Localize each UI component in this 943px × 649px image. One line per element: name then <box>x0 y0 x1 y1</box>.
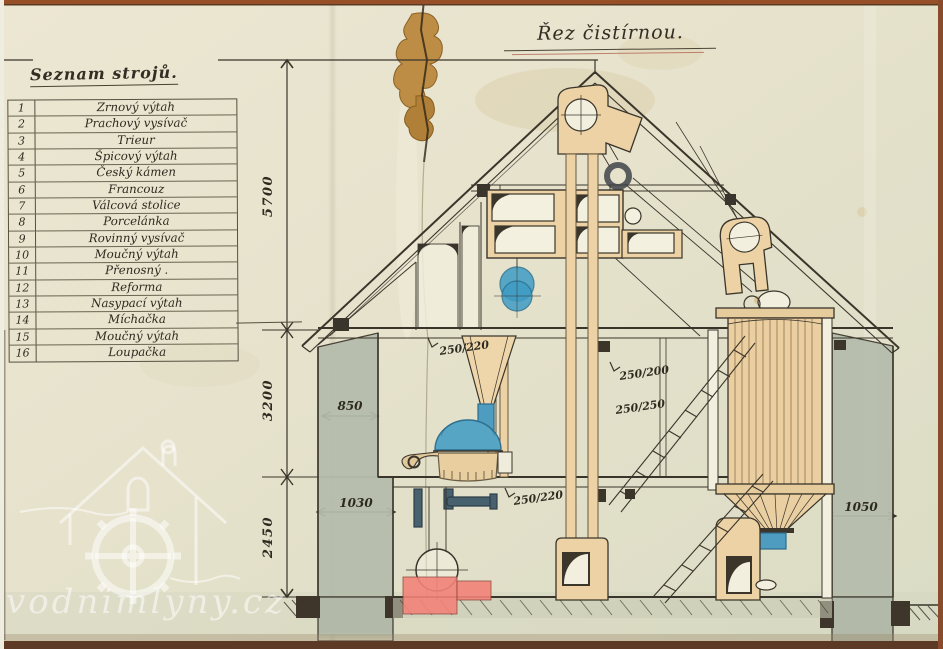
dim-1030: 1030 <box>339 496 373 510</box>
machine-number: 13 <box>9 297 36 312</box>
drawing-title: Řez čistírnou. <box>498 21 723 45</box>
machine-number: 14 <box>9 313 36 328</box>
drawing-title-text: Řez čistírnou. <box>537 21 684 45</box>
machine-number: 11 <box>9 264 36 279</box>
machine-name: Nasypací výtah <box>36 296 237 312</box>
scanned-blueprint-page: 5700 3200 2450 850 1030 1050 250/220 250… <box>0 0 943 649</box>
machine-name: Válcová stolice <box>36 197 237 213</box>
foundation-block-red-small <box>457 581 491 600</box>
machine-number: 15 <box>10 329 37 344</box>
machine-name: Rovinný vysívač <box>36 230 237 246</box>
machine-number: 5 <box>9 166 36 181</box>
dim-3200: 3200 <box>261 379 276 421</box>
machine-number: 16 <box>10 346 37 361</box>
machine-name: Francouz <box>36 181 237 197</box>
machine-row: 3Trieur <box>8 131 236 149</box>
machine-number: 4 <box>9 149 36 164</box>
dim-850: 850 <box>337 399 363 413</box>
machine-number: 2 <box>8 117 35 132</box>
dim-2450: 2450 <box>261 516 276 559</box>
machine-list-table: 1Zrnový výtah 2Prachový vysívač 3Trieur … <box>7 98 238 362</box>
machine-row: 14Míchačka <box>9 311 237 329</box>
foundation-block-red <box>403 577 457 614</box>
machine-row: 10Moučný výtah <box>9 245 237 263</box>
machine-number: 8 <box>9 215 36 230</box>
machine-number: 10 <box>9 248 36 263</box>
machine-row: 11Přenosný . <box>9 262 237 280</box>
machine-list-header: Seznam strojů. <box>30 63 178 88</box>
machine-row: 2Prachový vysívač <box>8 115 236 133</box>
dim-1050: 1050 <box>844 500 878 514</box>
machine-row: 12Reforma <box>9 278 237 296</box>
machine-name: Moučný výtah <box>37 328 238 344</box>
machine-row: 4Špicový výtah <box>9 147 237 165</box>
machine-name: Loupačka <box>37 345 238 361</box>
machine-name: Zrnový výtah <box>35 99 236 115</box>
machine-number: 3 <box>8 133 35 148</box>
machine-row: 15Moučný výtah <box>10 327 238 345</box>
machine-number: 7 <box>9 199 36 214</box>
machine-name: Reforma <box>36 279 237 295</box>
machine-name: Trieur <box>35 132 236 148</box>
machine-name: Prachový vysívač <box>35 116 236 132</box>
machine-row: 1Zrnový výtah <box>8 99 236 116</box>
machine-name: Porcelánka <box>36 214 237 230</box>
machine-row: 16Loupačka <box>10 344 238 362</box>
machine-name: Špicový výtah <box>36 148 237 164</box>
machine-name: Moučný výtah <box>36 246 237 262</box>
machine-row: 9Rovinný vysívač <box>9 229 237 247</box>
machine-row: 5Český kámen <box>9 164 237 182</box>
machine-row: 8Porcelánka <box>9 213 237 231</box>
machine-number: 12 <box>9 280 36 295</box>
machine-name: Přenosný . <box>36 263 237 279</box>
machine-number: 1 <box>8 100 35 115</box>
machine-row: 7Válcová stolice <box>9 196 237 214</box>
machine-number: 6 <box>9 182 36 197</box>
dim-5700: 5700 <box>261 175 276 217</box>
machine-row: 6Francouz <box>9 180 237 198</box>
machine-name: Míchačka <box>36 312 237 328</box>
machine-row: 13Nasypací výtah <box>9 295 237 313</box>
machine-name: Český kámen <box>36 165 237 181</box>
machine-number: 9 <box>9 231 36 246</box>
watermark-text: vodnimlyny.cz <box>6 582 286 622</box>
